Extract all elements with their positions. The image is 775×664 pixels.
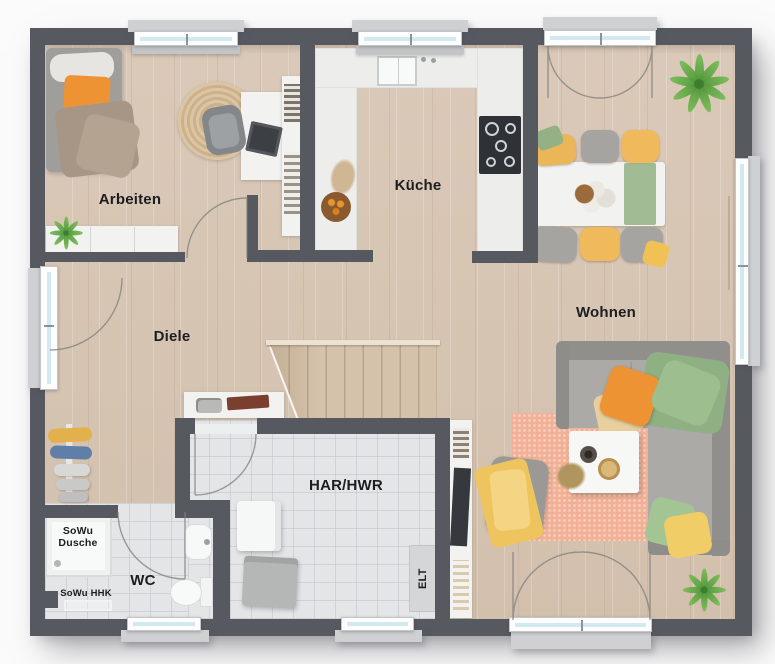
room-label-arbeiten: Arbeiten [80,192,180,209]
dining-chair-3 [622,130,659,163]
dining-chair-4 [532,226,578,263]
office-window [134,31,238,46]
armchair-throw-fold [489,468,531,531]
dining-chair-2 [581,130,619,163]
sofa-armrest-left [556,341,569,429]
living-window [735,158,749,365]
har-window-outer-sill [335,630,422,642]
annotation-shower: SoWu Dusche [46,526,110,550]
wall-wc-right [213,500,230,620]
shoes-1 [54,464,90,476]
room-label-wohnen: Wohnen [556,305,656,322]
kitchen-window-tick [410,34,412,45]
annotation-radiator: SoWu HHK [50,589,122,600]
living-window-divider [738,265,748,267]
room-label-kueche: Küche [368,178,468,195]
wc-window-glass [133,622,195,626]
water-heater [237,501,281,551]
hall-sideboard-decor [196,398,222,413]
toilet-bowl [170,579,202,606]
entrance-door-handle [44,325,54,327]
entrance-door [40,266,58,390]
curtain-line [728,196,730,290]
tv-board-books-top [453,428,469,458]
cooktop-burner-3 [495,140,507,152]
entrance-door-panel [47,272,51,384]
office-shelf-books-bottom [284,152,301,214]
entrance-outer-sill [28,268,40,388]
cooktop-burner-4 [486,157,496,167]
terrace-door-top [544,30,656,46]
wall-kitchen-right [523,45,538,263]
room-label-wc: WC [113,573,173,590]
dining-chair-5 [580,227,620,261]
sofa-pillow-yellow [663,510,714,559]
wall-hall-kitchen-left [247,250,373,262]
kitchen-faucet [421,57,426,62]
har-window-glass [347,622,408,626]
desk-laptop [245,121,283,157]
wc-sink-faucet [204,539,210,545]
terrace-door-bottom-landing [511,631,651,649]
kitchen-window [358,31,462,46]
office-sideboard-dividers [90,227,91,253]
office-window-inner-sill [132,46,240,54]
cooktop-burner-2 [505,123,516,134]
coffee-table-bowl [598,458,620,480]
staircase-handrail [266,340,440,345]
shoes-2 [56,479,90,490]
wc-window-outer-sill [121,630,209,642]
annotation-electrical: ELT [409,545,437,612]
living-window-glass [740,164,744,359]
coat-scarf-yellow [48,427,93,443]
cooktop-burner-5 [504,156,515,167]
terrace-door-top-mullion [600,33,602,45]
wall-har-top-right [257,418,450,434]
washing-machine [242,556,299,609]
shoes-3 [58,492,88,502]
wall-office-bottom [45,252,185,262]
table-flowers [570,175,618,217]
office-shelf-books-top [284,84,301,122]
floor-plan: Arbeiten Küche Wohnen Diele HAR/HWR WC S… [0,0,775,664]
har-window [341,617,414,631]
table-runner [624,163,656,225]
tv-board-books-bottom [453,560,469,610]
desk-chair-cushion [207,112,240,150]
staircase [270,342,437,418]
room-label-har: HAR/HWR [286,478,406,495]
kitchen-window-inner-sill [356,46,464,54]
wall-kitchen-left [300,45,315,257]
har-door-threshold [195,424,257,434]
wall-wc-top [30,505,118,518]
cooktop-burner-1 [485,122,499,136]
fruit-bowl [321,192,351,222]
kitchen-sink-divider [398,58,399,84]
office-window-tick [186,34,188,45]
towel-radiator [64,600,112,611]
coat-scarf-blue [50,445,92,459]
room-label-diele: Diele [122,329,222,346]
wc-window [127,617,201,631]
wall-hall-kitchen-right [472,251,538,263]
terrace-door-top-landing [543,17,657,30]
kitchen-sink [377,56,417,86]
wall-har-right [435,418,450,620]
living-window-outer-sill [748,156,760,366]
shower-drain [54,560,61,567]
terrace-door-bottom-mullion [581,620,583,631]
terrace-door-bottom [509,617,652,632]
